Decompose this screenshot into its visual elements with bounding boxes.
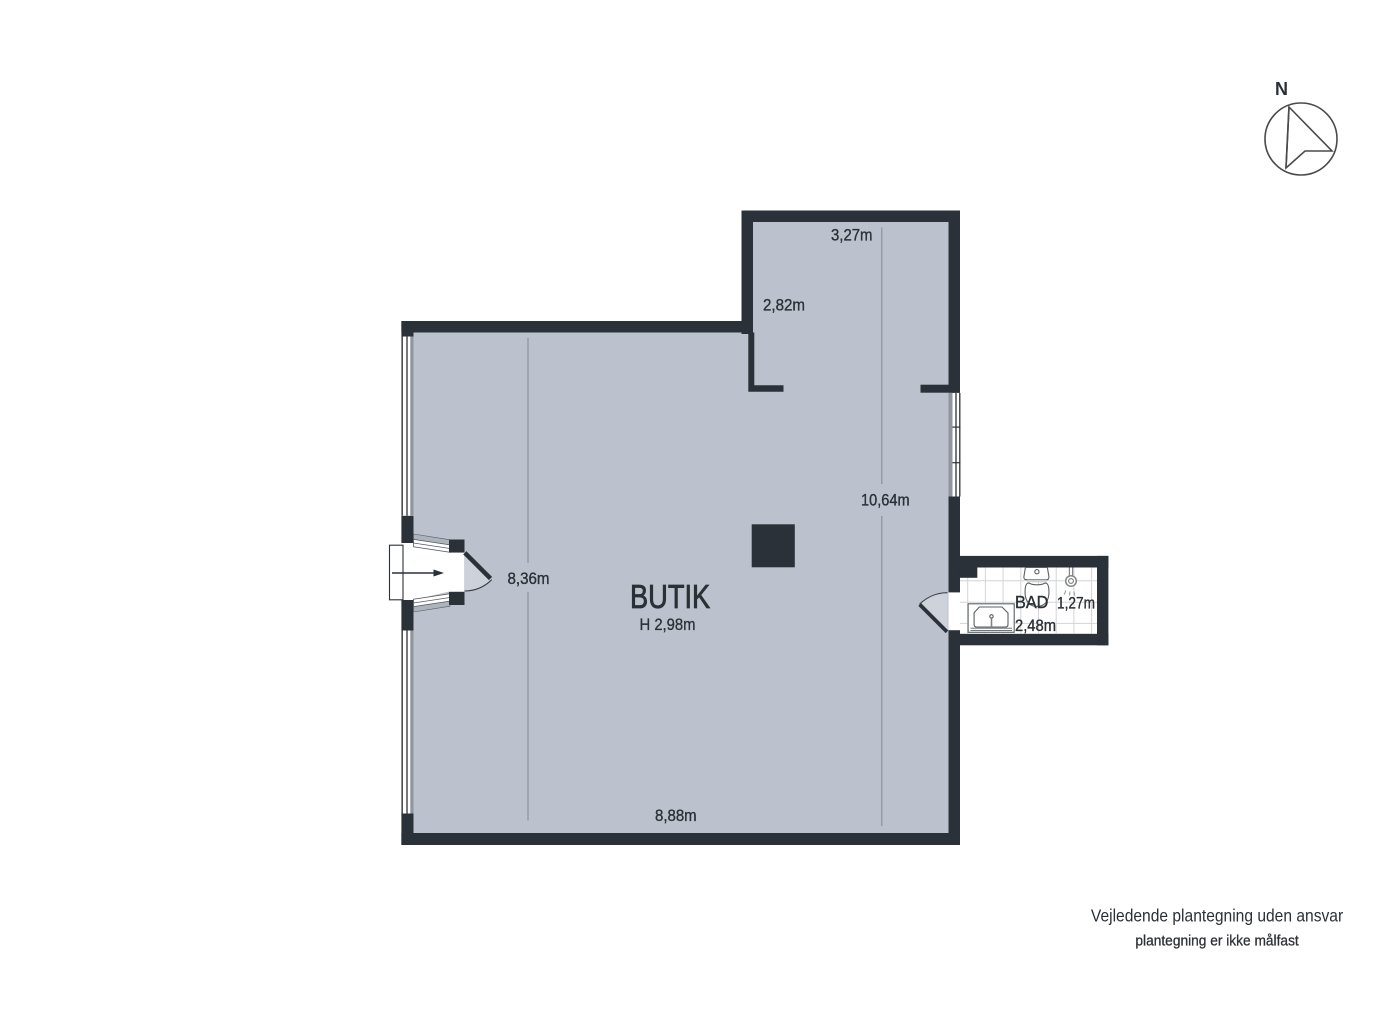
svg-text:10,64m: 10,64m (861, 492, 910, 510)
svg-text:Vejledende plantegning uden an: Vejledende plantegning uden ansvar (1091, 906, 1344, 926)
svg-text:2,48m: 2,48m (1015, 617, 1056, 635)
svg-text:BUTIK: BUTIK (630, 580, 710, 616)
svg-text:8,88m: 8,88m (655, 808, 697, 826)
svg-text:H 2,98m: H 2,98m (640, 617, 696, 635)
svg-text:2,82m: 2,82m (763, 297, 805, 315)
svg-text:8,36m: 8,36m (508, 570, 550, 588)
svg-text:BAD: BAD (1015, 592, 1048, 612)
svg-text:3,27m: 3,27m (831, 227, 872, 245)
svg-text:N: N (1275, 79, 1288, 99)
svg-text:1,27m: 1,27m (1057, 594, 1095, 612)
svg-text:plantegning er ikke målfast: plantegning er ikke målfast (1135, 933, 1298, 950)
